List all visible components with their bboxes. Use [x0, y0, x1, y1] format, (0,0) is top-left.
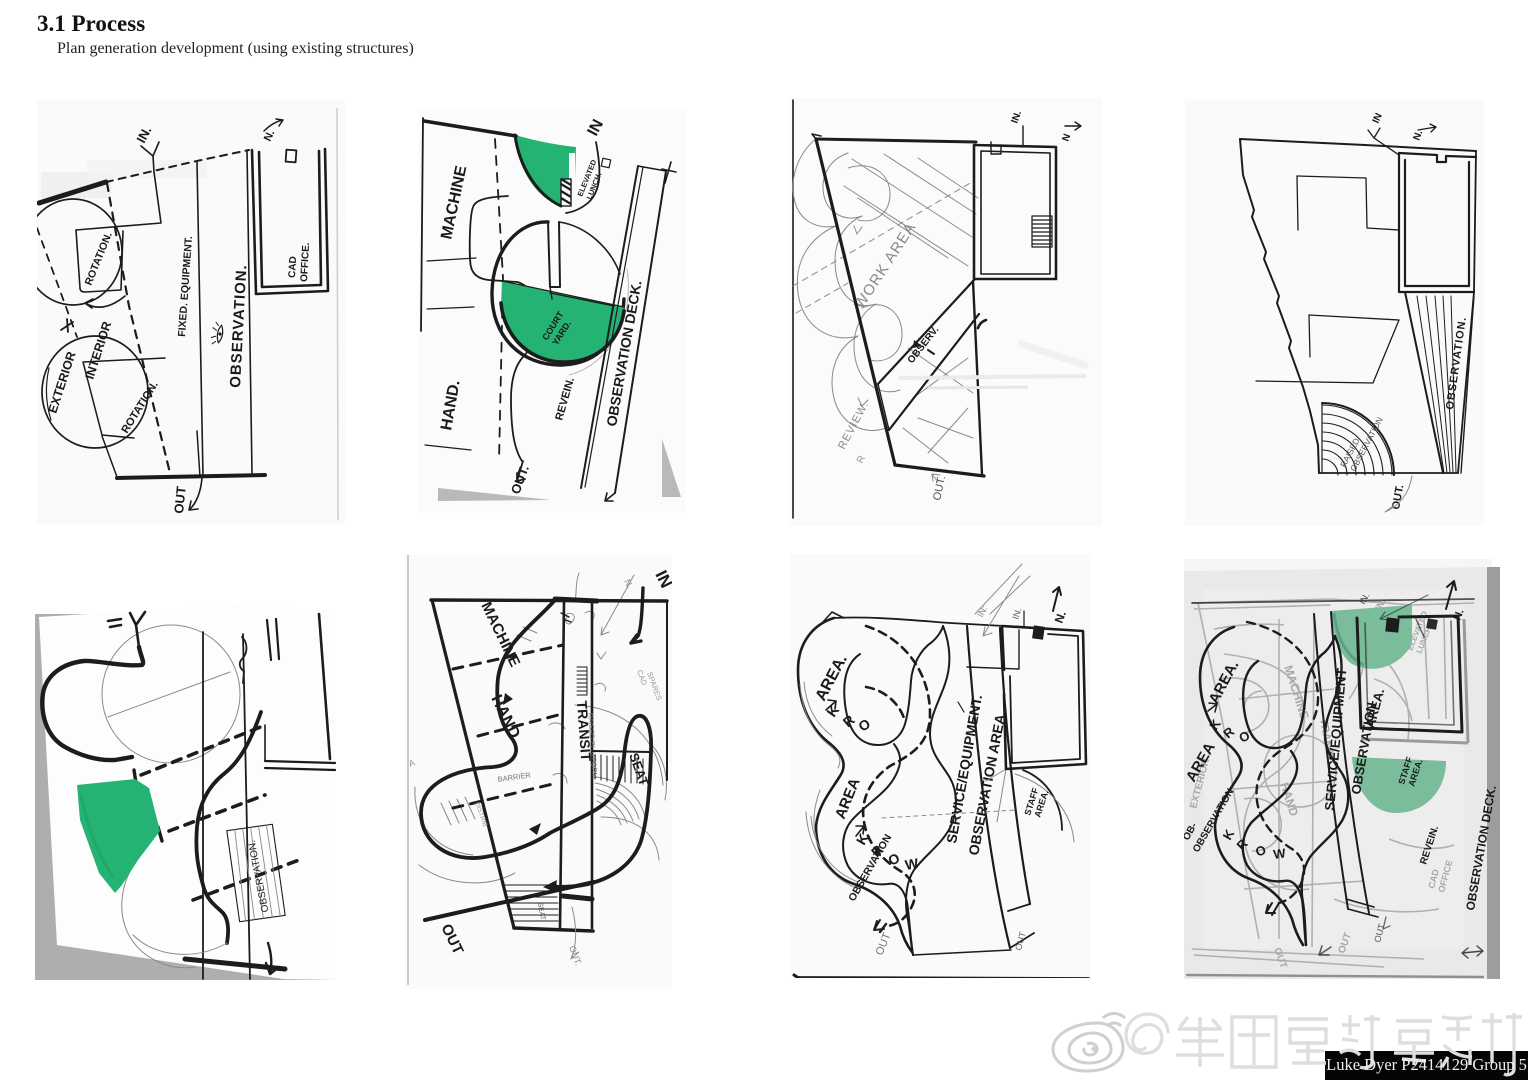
svg-text:CAD: CAD — [287, 256, 299, 278]
svg-text:OFFICE.: OFFICE. — [299, 242, 312, 282]
svg-text:OUT: OUT — [171, 485, 189, 514]
